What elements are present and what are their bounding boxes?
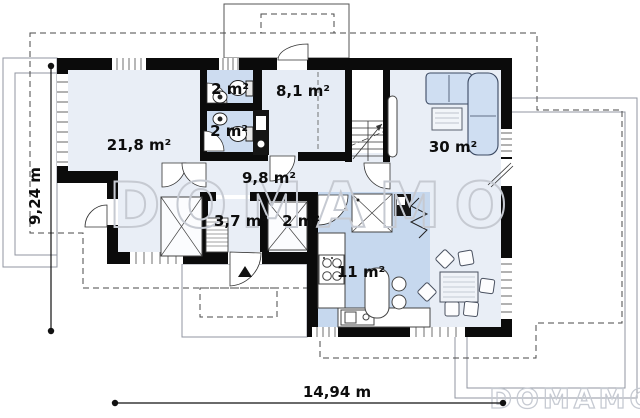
- chimney-dashed: [261, 14, 334, 33]
- chair: [463, 301, 478, 316]
- wall-int-hall-b: [298, 152, 352, 161]
- dimension-label-left: 9,24 m: [26, 167, 44, 225]
- area-label-lounge: 30 m²: [429, 138, 477, 156]
- area-label-upper-hall: 8,1 m²: [276, 82, 330, 100]
- boiler: [253, 110, 269, 155]
- stool-2: [392, 295, 406, 309]
- stool-1: [392, 277, 406, 291]
- wall-int-bath-mid: [200, 103, 255, 111]
- area-label-wc-upper: 2 m²: [211, 80, 249, 98]
- chair: [479, 278, 495, 294]
- watermark-corner: DOMAMO: [490, 384, 640, 415]
- area-label-wardrobe: 2 m²: [282, 212, 320, 230]
- chair: [458, 250, 474, 266]
- dimension-label-bottom: 14,94 m: [303, 383, 371, 401]
- area-label-kitchen: 11 m²: [337, 263, 385, 281]
- floor-plan: DOMAMO DOMAMO 21,8 m² 2 m² 2 m² 8,1 m² 3…: [0, 0, 640, 418]
- floor-plan-drawing: DOMAMO DOMAMO 21,8 m² 2 m² 2 m² 8,1 m² 3…: [0, 0, 640, 418]
- area-label-bathroom-lower: 2 m²: [210, 122, 248, 140]
- porch-roof-dashed: [200, 288, 277, 317]
- radiator: [388, 96, 397, 157]
- chair: [445, 302, 459, 316]
- watermark-center: DOMAMO: [109, 169, 521, 242]
- area-label-utility: 3,7 m²: [214, 212, 268, 230]
- side-door-swing: [85, 205, 107, 227]
- area-label-living-room: 21,8 m²: [107, 136, 171, 154]
- back-door-swing: [278, 44, 308, 60]
- floor-stairs: [350, 70, 385, 162]
- coffee-table: [432, 108, 462, 130]
- wall-stairs-left: [345, 70, 352, 162]
- area-label-hallway: 9,8 m²: [242, 169, 296, 187]
